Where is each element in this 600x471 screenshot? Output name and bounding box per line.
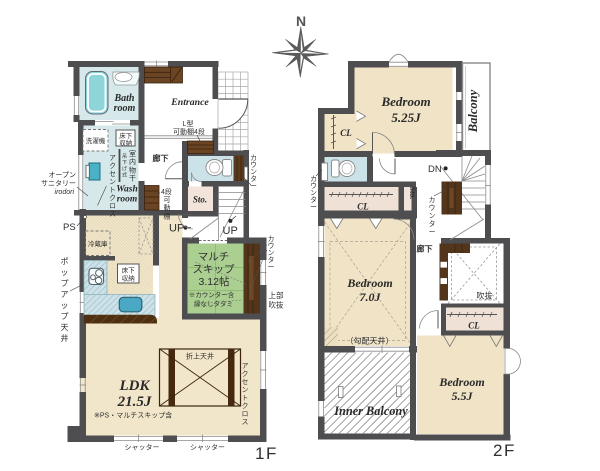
svg-text:3.12帖: 3.12帖 bbox=[199, 275, 230, 288]
svg-text:収納: 収納 bbox=[122, 274, 135, 283]
svg-text:5.5J: 5.5J bbox=[452, 389, 474, 403]
svg-text:収納: 収納 bbox=[119, 138, 132, 147]
svg-text:Bedroom: Bedroom bbox=[438, 375, 484, 389]
svg-text:シャッター: シャッター bbox=[125, 443, 160, 452]
svg-text:CL: CL bbox=[340, 128, 352, 138]
svg-text:room: room bbox=[114, 103, 136, 114]
svg-text:（勾配天井）: （勾配天井） bbox=[346, 336, 394, 346]
svg-text:室内物干: 室内物干 bbox=[129, 149, 136, 183]
svg-text:1F: 1F bbox=[255, 444, 278, 463]
svg-text:床下: 床下 bbox=[122, 266, 136, 275]
svg-text:オープン: オープン bbox=[48, 171, 76, 179]
svg-text:5.25J: 5.25J bbox=[391, 110, 421, 125]
svg-text:Inner Balcony: Inner Balcony bbox=[333, 404, 408, 418]
svg-text:冷蔵庫: 冷蔵庫 bbox=[88, 239, 108, 248]
svg-text:吹抜: 吹抜 bbox=[269, 300, 284, 310]
svg-text:折上天井: 折上天井 bbox=[186, 352, 214, 361]
svg-text:Entrance: Entrance bbox=[170, 97, 209, 108]
svg-text:4段: 4段 bbox=[161, 187, 172, 196]
svg-text:Sto.: Sto. bbox=[408, 187, 417, 200]
svg-text:2F: 2F bbox=[493, 441, 516, 460]
svg-text:カウンター: カウンター bbox=[429, 196, 436, 236]
svg-text:PS: PS bbox=[63, 222, 76, 233]
svg-text:上部: 上部 bbox=[269, 290, 284, 300]
svg-text:吹抜: 吹抜 bbox=[477, 291, 493, 301]
svg-text:UP: UP bbox=[223, 225, 238, 237]
svg-text:room: room bbox=[117, 195, 138, 205]
svg-text:カウンター: カウンター bbox=[268, 235, 275, 271]
svg-text:Sto.: Sto. bbox=[193, 195, 207, 205]
svg-text:廊下: 廊下 bbox=[417, 244, 433, 254]
svg-text:Wash: Wash bbox=[116, 185, 137, 195]
svg-text:21.5J: 21.5J bbox=[117, 394, 152, 410]
svg-text:カウンター: カウンター bbox=[250, 154, 257, 190]
svg-text:可動棚: 可動棚 bbox=[164, 196, 171, 220]
svg-text:縁なしタタミ: 縁なしタタミ bbox=[194, 299, 233, 308]
svg-text:吊下げ式: 吊下げ式 bbox=[122, 154, 127, 179]
svg-text:サニタリー: サニタリー bbox=[41, 179, 76, 188]
svg-text:LDK: LDK bbox=[119, 378, 151, 394]
svg-text:7.0J: 7.0J bbox=[360, 290, 382, 304]
svg-text:CL: CL bbox=[468, 321, 480, 331]
svg-text:可動棚4段: 可動棚4段 bbox=[173, 127, 205, 136]
svg-text:※PS・マルチスキップ含: ※PS・マルチスキップ含 bbox=[94, 411, 172, 420]
svg-text:カウンター: カウンター bbox=[310, 175, 317, 211]
svg-text:廊下: 廊下 bbox=[153, 153, 169, 163]
svg-text:スキップ: スキップ bbox=[193, 264, 235, 276]
svg-text:Bedroom: Bedroom bbox=[380, 94, 430, 109]
svg-text:マルチ: マルチ bbox=[198, 251, 230, 263]
svg-text:irodori: irodori bbox=[55, 189, 75, 196]
svg-text:DN: DN bbox=[428, 164, 442, 175]
svg-text:シャッター: シャッター bbox=[190, 443, 225, 452]
svg-text:CL: CL bbox=[357, 202, 369, 212]
svg-text:※カウンター含: ※カウンター含 bbox=[189, 290, 235, 299]
svg-text:L型: L型 bbox=[183, 119, 194, 128]
svg-text:洗濯機: 洗濯機 bbox=[86, 136, 106, 145]
svg-text:Balcony: Balcony bbox=[466, 89, 480, 133]
svg-text:Bedroom: Bedroom bbox=[346, 276, 392, 290]
svg-text:床下: 床下 bbox=[119, 131, 133, 140]
